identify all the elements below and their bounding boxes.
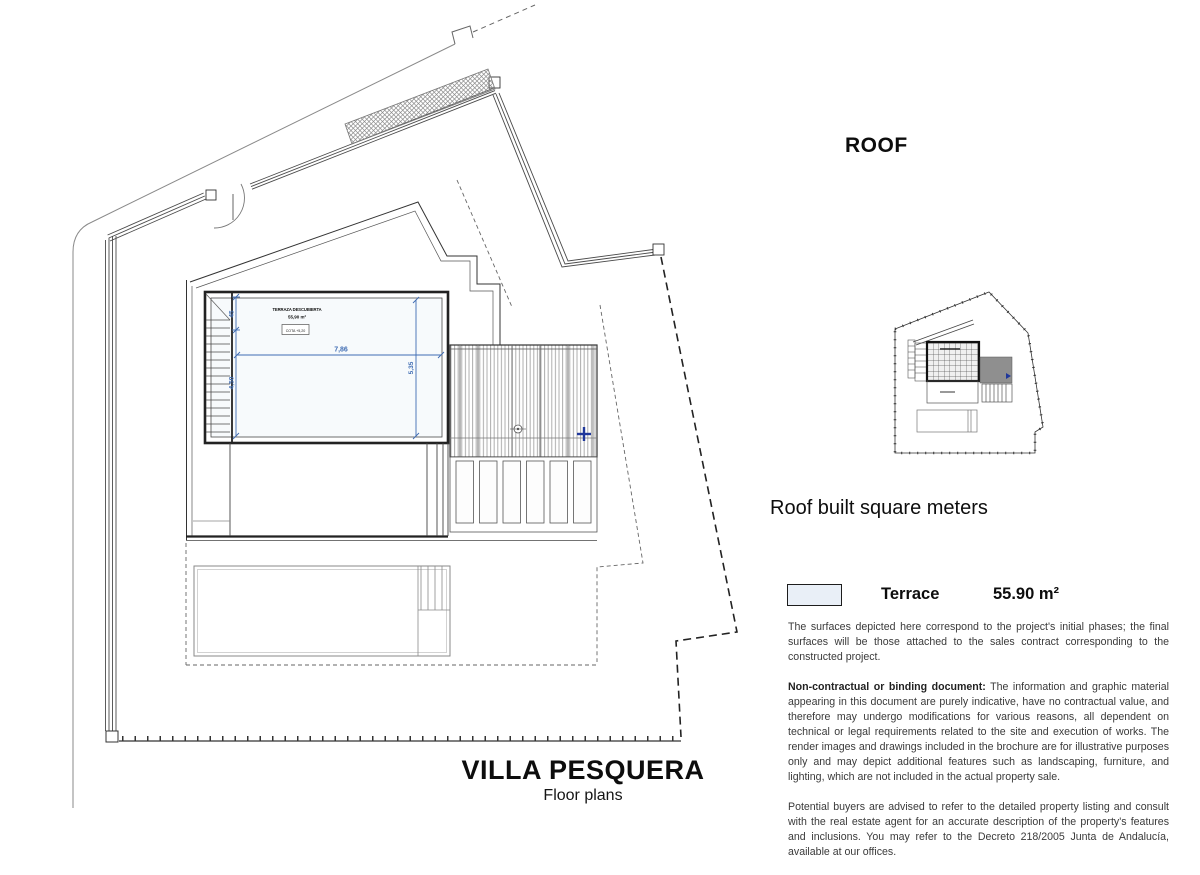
key-plan-inset: [878, 283, 1063, 461]
disclaimer-bold-lead: Non-contractual or binding document:: [788, 681, 986, 693]
dim-left-upper-label: 45: [229, 310, 236, 318]
svg-text:TERRAZA DESCUBIERTA: TERRAZA DESCUBIERTA: [272, 307, 321, 312]
disclaimer-paragraph-3: Potential buyers are advised to refer to…: [788, 800, 1169, 860]
hatched-wall-strip: [345, 69, 495, 144]
project-subtitle: Floor plans: [433, 787, 733, 805]
legend-label: Terrace: [881, 585, 939, 604]
bottom-boundary: [106, 731, 681, 742]
project-title: VILLA PESQUERA: [433, 755, 733, 785]
pool-lower-level: [194, 566, 450, 656]
keyplan-deck-gray: [980, 357, 1012, 383]
roof-terrace-block: 7,86 5,35 45 4,50 TERRAZA DESCUBIERTA 55…: [205, 292, 448, 443]
disclaimer-text: The surfaces depicted here correspond to…: [788, 620, 1169, 875]
keyplan-lower-block: [927, 381, 978, 403]
disclaimer-paragraph-2-rest: The information and graphic material app…: [788, 681, 1169, 784]
keyplan-slats: [982, 384, 1012, 402]
deck-area: [450, 345, 597, 457]
keyplan-roof-terrace-highlight: [927, 342, 979, 381]
footer-title-block: VILLA PESQUERA Floor plans: [433, 755, 733, 805]
legend-area-value: 55.90 m²: [993, 585, 1059, 604]
svg-text:55,90 m²: 55,90 m²: [288, 315, 307, 320]
summary-title: Roof built square meters: [770, 497, 988, 520]
plot-boundary-dashed: [661, 257, 737, 737]
dim-width-label: 7,86: [334, 347, 348, 354]
right-fence: [493, 93, 664, 267]
disclaimer-paragraph-1: The surfaces depicted here correspond to…: [788, 620, 1169, 665]
gate-swing-arc: [214, 184, 244, 228]
legend-row: Terrace 55.90 m²: [787, 582, 1177, 608]
dim-right-label: 5,35: [408, 361, 415, 374]
svg-text:COTA +5,20: COTA +5,20: [286, 329, 306, 333]
roof-floor-plan-drawing: 7,86 5,35 45 4,50 TERRAZA DESCUBIERTA 55…: [0, 0, 760, 846]
plan-name-roof: ROOF: [845, 134, 908, 158]
terrace-color-swatch: [787, 584, 842, 606]
louver-slats: [450, 457, 597, 532]
dim-left-lower-label: 4,50: [229, 376, 236, 389]
keyplan-pool: [917, 410, 977, 432]
disclaimer-paragraph-2: Non-contractual or binding document: The…: [788, 680, 1169, 786]
